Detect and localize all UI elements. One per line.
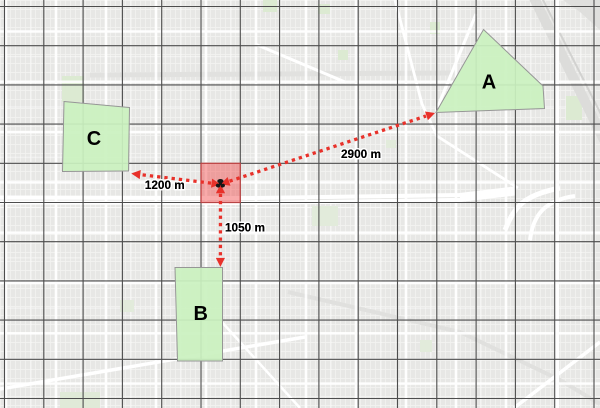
svg-text:2900 m: 2900 m	[341, 147, 381, 161]
svg-text:B: B	[193, 303, 207, 325]
svg-text:1050 m: 1050 m	[225, 220, 265, 234]
svg-text:1200 m: 1200 m	[145, 178, 185, 192]
svg-text:C: C	[87, 128, 101, 150]
svg-text:A: A	[482, 72, 496, 94]
